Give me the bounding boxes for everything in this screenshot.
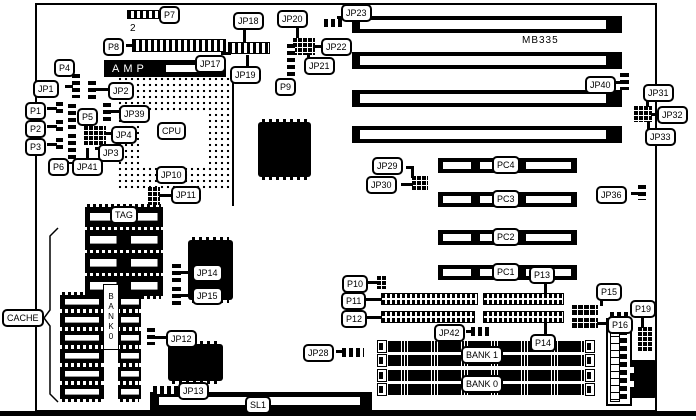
label-jp41: JP41 xyxy=(72,158,103,176)
pointer-line xyxy=(631,192,639,195)
label-jp2: JP2 xyxy=(108,82,134,100)
cache-chip-row xyxy=(85,253,163,273)
bank0-cache-chip xyxy=(60,349,104,363)
label-jp21: JP21 xyxy=(304,57,335,75)
pointer-line xyxy=(411,168,414,178)
p16-header xyxy=(572,318,598,328)
bank0-cache-chip xyxy=(118,313,141,327)
pointer-line xyxy=(466,330,472,333)
pointer-line xyxy=(47,143,57,146)
label-jp4: JP4 xyxy=(111,126,137,144)
jp42-pins xyxy=(471,327,492,336)
p19-connector xyxy=(638,327,653,351)
board-model-text: MB335 xyxy=(522,35,559,46)
isa-slot-4 xyxy=(352,126,622,143)
label-jp30: JP30 xyxy=(366,176,397,194)
label-jp17: JP17 xyxy=(195,55,226,73)
isa-slot-contact xyxy=(360,94,606,103)
label-p1: P1 xyxy=(25,102,46,120)
bank0-chip-column-label: BANK0 xyxy=(103,284,119,350)
label-jp10: JP10 xyxy=(156,166,187,184)
label-jp14: JP14 xyxy=(192,264,223,282)
bank0-cache-chip xyxy=(60,331,104,345)
label-jp15: JP15 xyxy=(192,287,223,305)
label-jp18: JP18 xyxy=(233,12,264,30)
label-pc2: PC2 xyxy=(492,228,520,246)
label-p12: P12 xyxy=(341,310,367,328)
label-p6: P6 xyxy=(48,158,69,176)
label-p13: P13 xyxy=(529,266,555,284)
label-p8: P8 xyxy=(103,38,124,56)
label-jp42: JP42 xyxy=(434,324,465,342)
bank0-cache-chip xyxy=(60,385,104,399)
pointer-line xyxy=(616,81,622,84)
label-jp40: JP40 xyxy=(585,76,616,94)
p4-jp1-pins xyxy=(72,74,80,98)
label-p10: P10 xyxy=(342,275,368,293)
p7-header xyxy=(127,10,159,19)
bank0-cache-chip xyxy=(118,331,141,345)
p1-pins xyxy=(56,102,63,115)
label-p19: P19 xyxy=(630,300,656,318)
label-jp22: JP22 xyxy=(321,38,352,56)
jp20-jp21-jp22-pin-grid xyxy=(293,38,315,55)
p15-header xyxy=(572,305,598,315)
label-jp13: JP13 xyxy=(178,382,209,400)
label-p4: P4 xyxy=(54,59,75,77)
cache-brace xyxy=(42,224,62,406)
label-p8-pin2: 2 xyxy=(130,23,136,34)
label-tag: TAG xyxy=(110,206,138,224)
pointer-line xyxy=(246,55,249,66)
jp36-pins xyxy=(638,185,646,200)
label-p9: P9 xyxy=(275,78,296,96)
p12-header xyxy=(381,311,475,323)
label-jp31: JP31 xyxy=(643,84,674,102)
amp-label: AMP xyxy=(112,63,148,75)
label-sl1: SL1 xyxy=(245,396,271,414)
label-jp1: JP1 xyxy=(33,80,59,98)
bank0-cache-chip xyxy=(118,295,141,309)
motherboard-diagram: MB335 AMP BANK0 xyxy=(0,0,696,420)
bank0-cache-chip xyxy=(118,385,141,399)
jp31-jp32-jp33-pin-grid xyxy=(634,106,652,122)
pointer-line xyxy=(95,88,109,91)
p11-header xyxy=(381,293,478,305)
isa-slot-2 xyxy=(352,52,622,69)
label-jp19: JP19 xyxy=(230,66,261,84)
label-p14: P14 xyxy=(530,334,556,352)
label-pc3: PC3 xyxy=(492,190,520,208)
bank0-cache-chip xyxy=(60,367,104,381)
label-jp29: JP29 xyxy=(372,157,403,175)
trace-line xyxy=(232,82,234,206)
pointer-line xyxy=(401,183,413,186)
label-p5: P5 xyxy=(77,108,98,126)
jp28-pins xyxy=(342,348,364,357)
label-pc4: PC4 xyxy=(492,156,520,174)
pointer-line xyxy=(65,85,73,88)
label-bank0-simm: BANK 0 xyxy=(461,375,503,393)
isa-slot-3 xyxy=(352,90,622,107)
label-p11: P11 xyxy=(341,292,366,310)
p10-pins xyxy=(377,276,387,289)
pointer-line xyxy=(86,148,89,158)
jp29-jp30-pin-grid xyxy=(412,176,428,191)
board-bottom-edge xyxy=(0,411,696,416)
p9-pins xyxy=(287,44,295,78)
pointer-line xyxy=(365,298,382,301)
pointer-line xyxy=(47,125,57,128)
cache-chip-row xyxy=(85,230,163,250)
p13-header xyxy=(483,293,564,305)
p3-pins xyxy=(56,138,63,151)
label-jp23: JP23 xyxy=(341,4,372,22)
label-jp39: JP39 xyxy=(119,105,150,123)
label-jp20: JP20 xyxy=(277,10,308,28)
isa-slot-1 xyxy=(352,16,622,33)
isa-slot-contact xyxy=(360,130,606,139)
isa-slot-contact xyxy=(360,56,606,65)
label-p15: P15 xyxy=(596,283,622,301)
jp13-pins xyxy=(153,386,178,394)
keyboard-din-connector xyxy=(630,360,656,398)
label-cache: CACHE xyxy=(2,309,44,327)
label-jp33: JP33 xyxy=(645,128,676,146)
label-jp28: JP28 xyxy=(303,344,334,362)
label-p7: P7 xyxy=(159,6,180,24)
pointer-line xyxy=(126,44,133,47)
bank0-cache-chip xyxy=(60,313,104,327)
label-bank1-simm: BANK 1 xyxy=(461,346,503,364)
label-jp12: JP12 xyxy=(166,330,197,348)
p8-header xyxy=(132,39,226,52)
p2-pins xyxy=(56,120,63,133)
pointer-line xyxy=(336,350,343,353)
p14-header xyxy=(483,311,564,323)
bank0-cache-chip xyxy=(118,367,141,381)
label-cpu: CPU xyxy=(157,122,186,140)
label-p2: P2 xyxy=(25,120,46,138)
label-jp11: JP11 xyxy=(171,186,201,204)
label-p16: P16 xyxy=(607,316,633,334)
jp17-jp18-jp19-header xyxy=(228,42,270,54)
label-jp32: JP32 xyxy=(657,106,688,124)
label-pc1: PC1 xyxy=(492,263,520,281)
bank0-cache-chip xyxy=(118,349,141,363)
jp23-pins xyxy=(324,19,342,27)
pointer-line xyxy=(47,107,57,110)
isa-slot-contact xyxy=(360,20,606,29)
label-p3: P3 xyxy=(25,138,46,156)
jp2-pins xyxy=(88,81,96,101)
p5-pins xyxy=(68,104,76,130)
qfp-chip-1 xyxy=(258,122,311,177)
qfp-chip-3 xyxy=(168,344,223,381)
label-jp36: JP36 xyxy=(596,186,627,204)
bank0-cache-chip xyxy=(60,295,104,309)
jp4-jp3-pin-grid xyxy=(84,126,106,146)
pointer-line xyxy=(365,316,382,319)
